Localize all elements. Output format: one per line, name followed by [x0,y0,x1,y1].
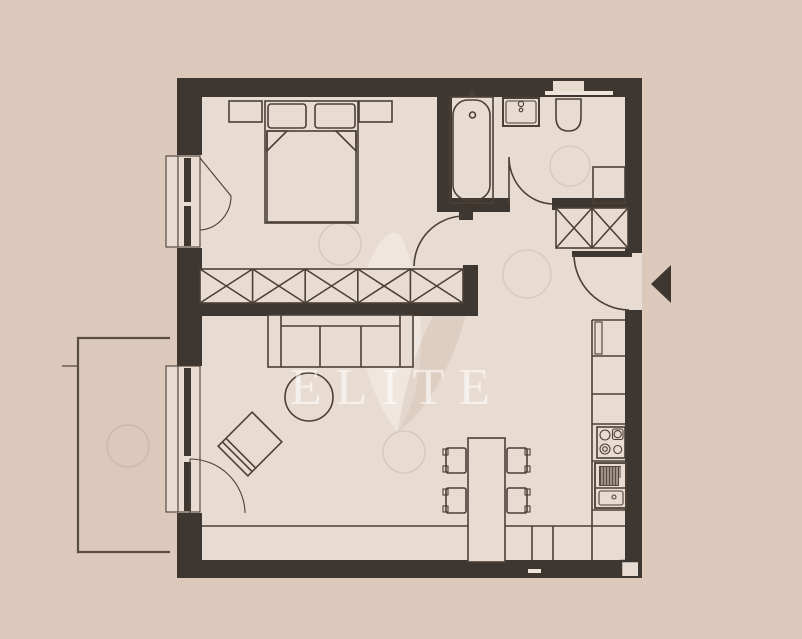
entrance-door-leaf [572,251,632,257]
double-bed [265,101,358,223]
entry-closet [556,208,628,248]
bathroom-window-sill [553,81,584,91]
bottom-wall-break-mark [528,569,541,573]
bathroom-window [545,91,613,95]
balcony-outline [62,338,170,552]
watermark-brand-text: ELITE [290,359,504,416]
wardrobe-x-row [200,269,463,303]
floor-plan-canvas: ELITE [0,0,802,639]
dining-table [468,438,505,562]
floor-plan-drawing: ELITE [0,0,802,639]
entrance-arrow [651,265,671,303]
corner-notch [621,561,639,577]
